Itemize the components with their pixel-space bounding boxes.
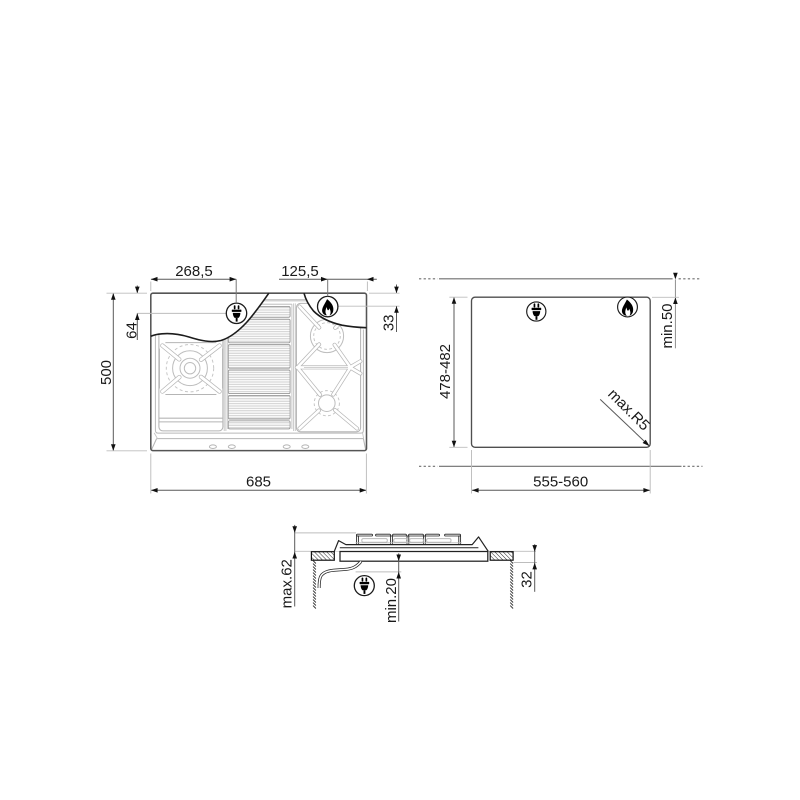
svg-text:555-560: 555-560 — [533, 474, 588, 491]
svg-text:268,5: 268,5 — [175, 263, 213, 280]
svg-text:125,5: 125,5 — [281, 263, 319, 280]
svg-text:min.50: min.50 — [659, 303, 676, 348]
svg-text:33: 33 — [381, 314, 398, 331]
svg-text:500: 500 — [98, 360, 115, 385]
svg-text:32: 32 — [519, 571, 536, 588]
svg-text:64: 64 — [124, 322, 141, 339]
svg-text:685: 685 — [246, 474, 271, 491]
svg-text:478-482: 478-482 — [437, 344, 454, 399]
svg-text:max.62: max.62 — [278, 559, 295, 608]
svg-text:min.20: min.20 — [383, 578, 400, 623]
